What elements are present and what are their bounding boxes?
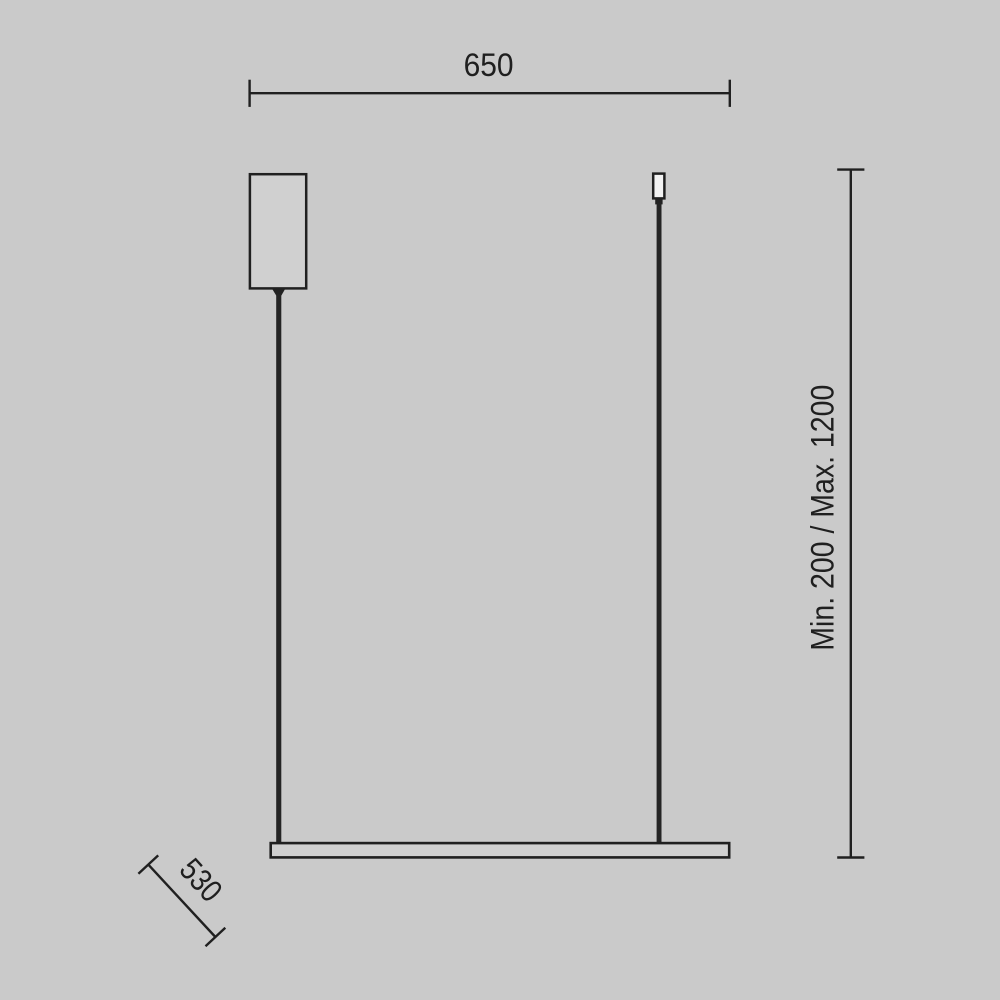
svg-text:Min. 200 / Max. 1200: Min. 200 / Max. 1200 (805, 385, 841, 651)
svg-text:650: 650 (464, 47, 514, 83)
